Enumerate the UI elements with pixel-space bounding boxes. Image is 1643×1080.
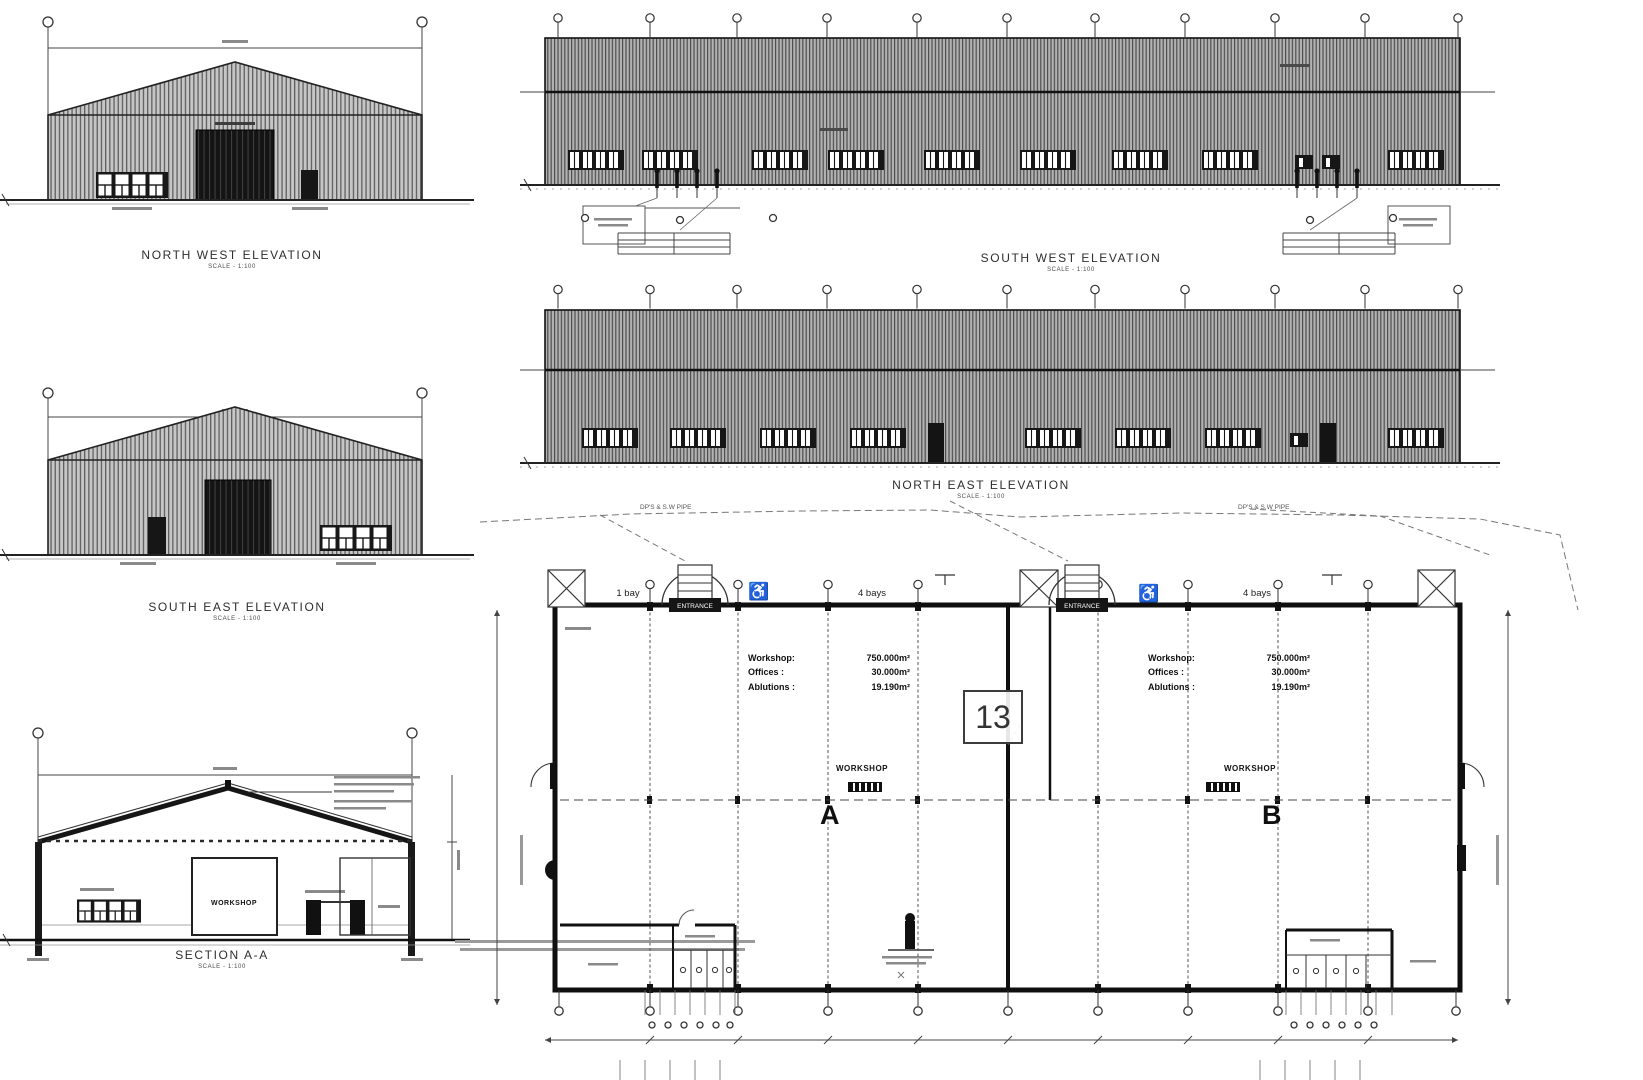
area-label: Offices : (1148, 665, 1184, 679)
nw-elevation-scale: SCALE - 1:100 (82, 264, 382, 270)
area-label: Ablutions : (748, 680, 795, 694)
section-roof-truss (38, 780, 412, 842)
plan-entrance-canopy-2: ENTRANCE (1049, 565, 1115, 612)
se-elevation-title-block: SOUTH EAST ELEVATION SCALE - 1:100 (87, 600, 387, 622)
ne-grid-bubbles (554, 285, 1462, 308)
nw-building (48, 62, 422, 200)
detail-marker-13: 13 (963, 690, 1023, 744)
bay-label-1bay: 1 bay (616, 588, 639, 599)
plan-scale-bar-a (848, 782, 882, 792)
area-row: Ablutions : 19.190m² (748, 680, 910, 694)
section-aa-scale: SCALE - 1:100 (72, 964, 372, 970)
plan-entrance-canopy-1: ENTRANCE (662, 565, 728, 612)
ne-elevation-title: NORTH EAST ELEVATION (831, 478, 1131, 492)
area-row: Offices : 30.000m² (748, 665, 910, 679)
section-aa-title-block: SECTION A-A SCALE - 1:100 (72, 948, 372, 970)
floor-plan-drawing: DP'S & S.W PIPE DP'S & S.W PIPE (480, 495, 1643, 1080)
area-value: 750.000m² (1266, 651, 1310, 665)
ne-elevation-scale: SCALE - 1:100 (831, 494, 1131, 500)
se-elevation-title: SOUTH EAST ELEVATION (87, 600, 387, 614)
section-annotation-leader (248, 776, 420, 810)
se-elevation-scale: SCALE - 1:100 (87, 616, 387, 622)
area-value: 19.190m² (1271, 680, 1310, 694)
bay-label-4bays-right: 4 bays (1243, 588, 1271, 599)
plan-scale-bar-b (1206, 782, 1240, 792)
detail-marker-number: 13 (975, 699, 1011, 736)
plan-dimension-lines (494, 610, 1511, 1044)
plan-roof-note-right: DP'S & S.W PIPE (1238, 504, 1290, 511)
ne-elevation-title-block: NORTH EAST ELEVATION SCALE - 1:100 (831, 478, 1131, 500)
north-west-elevation-drawing (0, 10, 480, 245)
section-marker-letter-a: A (820, 800, 840, 831)
sw-building (545, 38, 1460, 185)
se-building (48, 407, 422, 555)
plan-rooms-left (560, 910, 735, 988)
nw-elevation-title: NORTH WEST ELEVATION (82, 248, 382, 262)
area-row: Workshop: 750.000m² (1148, 651, 1310, 665)
area-label: Workshop: (1148, 651, 1195, 665)
area-row: Workshop: 750.000m² (748, 651, 910, 665)
plan-bottom-grid-bubbles (555, 990, 1460, 1015)
sw-elevation-title-block: SOUTH WEST ELEVATION SCALE - 1:100 (921, 251, 1221, 273)
bay-label-4bays-left: 4 bays (858, 588, 886, 599)
sw-elevation-scale: SCALE - 1:100 (921, 267, 1221, 273)
sw-elevation-title: SOUTH WEST ELEVATION (921, 251, 1221, 265)
accessibility-icon-2: ♿ (1138, 583, 1159, 603)
south-east-elevation-drawing (0, 375, 480, 610)
sw-detail-boxes (582, 206, 1451, 244)
nw-elevation-title-block: NORTH WEST ELEVATION SCALE - 1:100 (82, 248, 382, 270)
accessibility-icon-1: ♿ (748, 581, 769, 601)
area-row: Ablutions : 19.190m² (1148, 680, 1310, 694)
plan-walls (555, 605, 1460, 990)
section-interior (42, 858, 410, 935)
area-value: 30.000m² (1271, 665, 1310, 679)
south-west-elevation-drawing (520, 8, 1500, 273)
plan-ablution-dim-ticks (620, 990, 1392, 1080)
plan-area-schedule-left: Workshop: 750.000m² Offices : 30.000m² A… (748, 651, 910, 694)
plan-workshop-label-b: WORKSHOP (1215, 764, 1285, 773)
section-marker-letter-b: B (1262, 800, 1282, 831)
section-workshop-label: WORKSHOP (199, 900, 269, 907)
nw-dimension-line (48, 40, 422, 53)
plan-rooms-right (1286, 930, 1436, 988)
area-row: Offices : 30.000m² (1148, 665, 1310, 679)
area-label: Ablutions : (1148, 680, 1195, 694)
area-label: Workshop: (748, 651, 795, 665)
drawing-sheet: WORKSHOP DP'S & S.W PIPE DP'S & S.W PIPE (0, 0, 1643, 1080)
area-value: 750.000m² (866, 651, 910, 665)
ne-building (545, 310, 1460, 463)
sw-grid-bubbles (554, 14, 1462, 37)
area-label: Offices : (748, 665, 784, 679)
plan-roof-note-left: DP'S & S.W PIPE (640, 504, 692, 511)
section-aa-title: SECTION A-A (72, 948, 372, 962)
plan-workshop-label-a: WORKSHOP (827, 764, 897, 773)
entrance-label-2: ENTRANCE (1064, 603, 1100, 610)
area-value: 19.190m² (871, 680, 910, 694)
entrance-label-1: ENTRANCE (677, 603, 713, 610)
area-value: 30.000m² (871, 665, 910, 679)
north-east-elevation-drawing (520, 283, 1500, 483)
plan-area-schedule-right: Workshop: 750.000m² Offices : 30.000m² A… (1148, 651, 1310, 694)
